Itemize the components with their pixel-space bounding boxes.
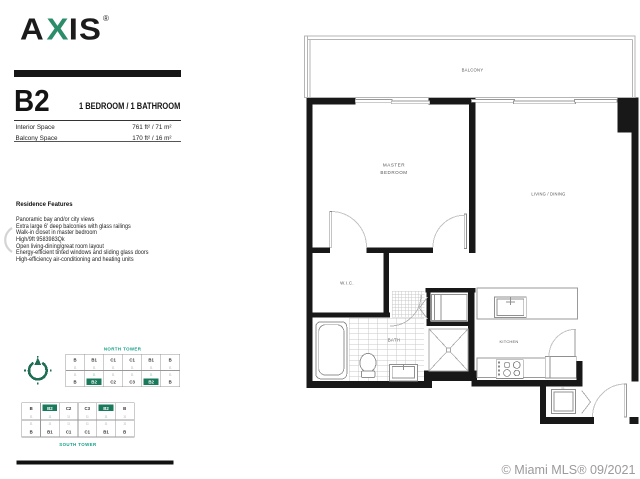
- svg-text:11: 11: [74, 372, 77, 376]
- svg-text:C3: C3: [85, 406, 91, 411]
- svg-text:11: 11: [93, 372, 96, 376]
- svg-text:B2: B2: [47, 406, 53, 411]
- svg-text:11: 11: [67, 415, 70, 419]
- svg-text:11: 11: [123, 422, 126, 426]
- svg-text:11: 11: [169, 365, 172, 369]
- svg-text:KITCHEN: KITCHEN: [500, 339, 519, 344]
- svg-text:BALCONY: BALCONY: [462, 68, 484, 73]
- svg-text:11: 11: [49, 415, 52, 419]
- svg-text:B: B: [74, 380, 77, 385]
- svg-text:B2: B2: [103, 406, 109, 411]
- svg-text:CL: CL: [561, 386, 565, 390]
- svg-text:11: 11: [86, 422, 89, 426]
- svg-text:B: B: [169, 357, 172, 362]
- svg-text:C2: C2: [110, 380, 116, 385]
- svg-text:MASTER: MASTER: [383, 162, 405, 167]
- svg-text:B1: B1: [103, 430, 109, 435]
- svg-text:11: 11: [169, 372, 172, 376]
- svg-text:B: B: [123, 430, 126, 435]
- svg-text:11: 11: [105, 415, 108, 419]
- svg-text:B: B: [74, 357, 77, 362]
- svg-text:11: 11: [123, 415, 126, 419]
- svg-text:NORTH TOWER: NORTH TOWER: [104, 346, 142, 351]
- svg-text:C1: C1: [85, 430, 91, 435]
- svg-text:11: 11: [105, 422, 108, 426]
- svg-text:W.I.C.: W.I.C.: [340, 281, 354, 286]
- svg-text:B: B: [30, 406, 33, 411]
- svg-text:C1: C1: [66, 430, 72, 435]
- svg-text:C1: C1: [110, 357, 116, 362]
- svg-text:11: 11: [74, 365, 77, 369]
- svg-text:B1: B1: [47, 430, 53, 435]
- svg-text:11: 11: [150, 365, 153, 369]
- svg-text:11: 11: [67, 422, 70, 426]
- svg-text:© Miami MLS® 09/2021: © Miami MLS® 09/2021: [501, 463, 635, 477]
- svg-text:B: B: [169, 380, 172, 385]
- svg-text:B2: B2: [91, 380, 97, 385]
- svg-text:C1: C1: [129, 357, 135, 362]
- svg-text:11: 11: [112, 365, 115, 369]
- svg-text:B1: B1: [91, 357, 97, 362]
- svg-text:11: 11: [131, 372, 134, 376]
- svg-text:11: 11: [112, 372, 115, 376]
- svg-text:11: 11: [93, 365, 96, 369]
- svg-text:B: B: [30, 430, 33, 435]
- svg-text:B2: B2: [148, 380, 154, 385]
- svg-text:11: 11: [131, 365, 134, 369]
- svg-text:B: B: [123, 406, 126, 411]
- svg-text:11: 11: [150, 372, 153, 376]
- svg-text:B1: B1: [148, 357, 154, 362]
- svg-text:BEDROOM: BEDROOM: [380, 170, 407, 175]
- svg-text:11: 11: [30, 415, 33, 419]
- svg-text:LIVING / DINING: LIVING / DINING: [531, 192, 565, 197]
- svg-text:11: 11: [86, 415, 89, 419]
- svg-text:11: 11: [30, 422, 33, 426]
- svg-text:C3: C3: [129, 380, 135, 385]
- svg-text:SOUTH TOWER: SOUTH TOWER: [59, 442, 97, 447]
- svg-text:C2: C2: [66, 406, 72, 411]
- svg-text:11: 11: [49, 422, 52, 426]
- svg-text:BATH: BATH: [388, 338, 401, 343]
